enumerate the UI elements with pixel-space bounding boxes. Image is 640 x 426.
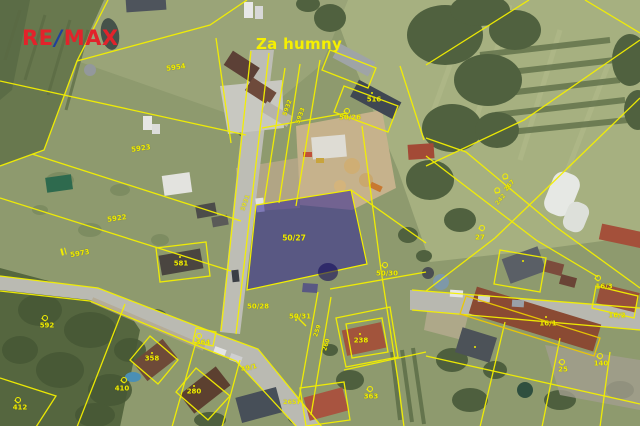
logo-re: RE <box>22 26 54 50</box>
landuse-symbol-icon <box>194 332 202 341</box>
parcel-label-5931: 5931 <box>240 194 251 212</box>
parcel-label-5932: 5932 <box>282 99 293 117</box>
landuse-symbol-icon <box>40 314 48 323</box>
parcel-label-5973: 5973 <box>70 249 90 259</box>
landuse-symbol-icon <box>365 385 373 394</box>
parcel-label-581: 581 <box>174 261 189 268</box>
parcel-label-259: 259 <box>313 324 323 338</box>
listing-map-image: 595451650/265932593359235922597358159315… <box>0 0 640 426</box>
landuse-symbol-icon <box>342 107 350 116</box>
landuse-symbol-icon <box>119 376 127 385</box>
parcel-label-5933: 5933 <box>295 107 306 125</box>
parcel-label-50-27: 50/27 <box>282 234 306 242</box>
landuse-symbol-icon <box>477 224 485 233</box>
parcel-label-25: 25 <box>558 367 568 374</box>
parcel-label-363: 363 <box>364 394 379 401</box>
building-dot-icon <box>474 346 477 349</box>
parcel-label-5922: 5922 <box>107 214 127 224</box>
landuse-symbol-icon <box>557 358 565 367</box>
parcel-label-5923: 5923 <box>131 144 151 154</box>
parcel-label-49-1: 49/1 <box>240 363 257 373</box>
parcel-labels: 595451650/265932593359235922597358159315… <box>0 0 640 426</box>
parcel-label-2657: 2657 <box>283 399 301 406</box>
parcel-label-516: 516 <box>367 97 382 104</box>
parcel-label-238: 238 <box>354 338 369 345</box>
parcel-label-592: 592 <box>40 323 55 330</box>
building-dot-icon <box>371 92 374 95</box>
parcel-label-5954: 5954 <box>166 63 186 73</box>
parcel-label-358: 358 <box>145 356 160 363</box>
parcel-label-260: 260 <box>322 338 332 352</box>
parcel-label-16-2: 16/2 <box>608 313 625 320</box>
parcel-label-140: 140 <box>594 361 609 368</box>
building-dot-icon <box>179 256 182 259</box>
landuse-symbol-icon <box>13 396 21 405</box>
area-label: Za humny <box>256 35 342 53</box>
logo-max: MAX <box>64 26 119 50</box>
parcel-label-410: 410 <box>115 386 130 393</box>
parcel-label-50-28: 50/28 <box>247 304 269 311</box>
building-dot-icon <box>522 260 525 263</box>
building-dot-icon <box>359 333 362 336</box>
logo-slash-icon: / <box>54 26 64 50</box>
parcel-label-280: 280 <box>187 389 202 396</box>
landuse-symbol-icon <box>593 274 601 283</box>
building-dot-icon <box>545 316 548 319</box>
parcel-label-27: 27 <box>475 235 485 242</box>
remax-logo: RE/MAX <box>22 26 119 50</box>
parcel-label-50-31: 50/31 <box>289 314 311 321</box>
parcel-label-16-3: 16/3 <box>595 284 612 291</box>
landuse-symbol-icon <box>595 352 603 361</box>
parcel-label-412: 412 <box>13 405 28 412</box>
parcel-label-16-1: 16/1 <box>539 321 556 328</box>
building-dot-icon <box>295 319 298 322</box>
double-bar-symbol-icon <box>59 247 69 256</box>
parcel-label-50-30: 50/30 <box>376 271 398 278</box>
landuse-symbol-icon <box>380 261 388 270</box>
